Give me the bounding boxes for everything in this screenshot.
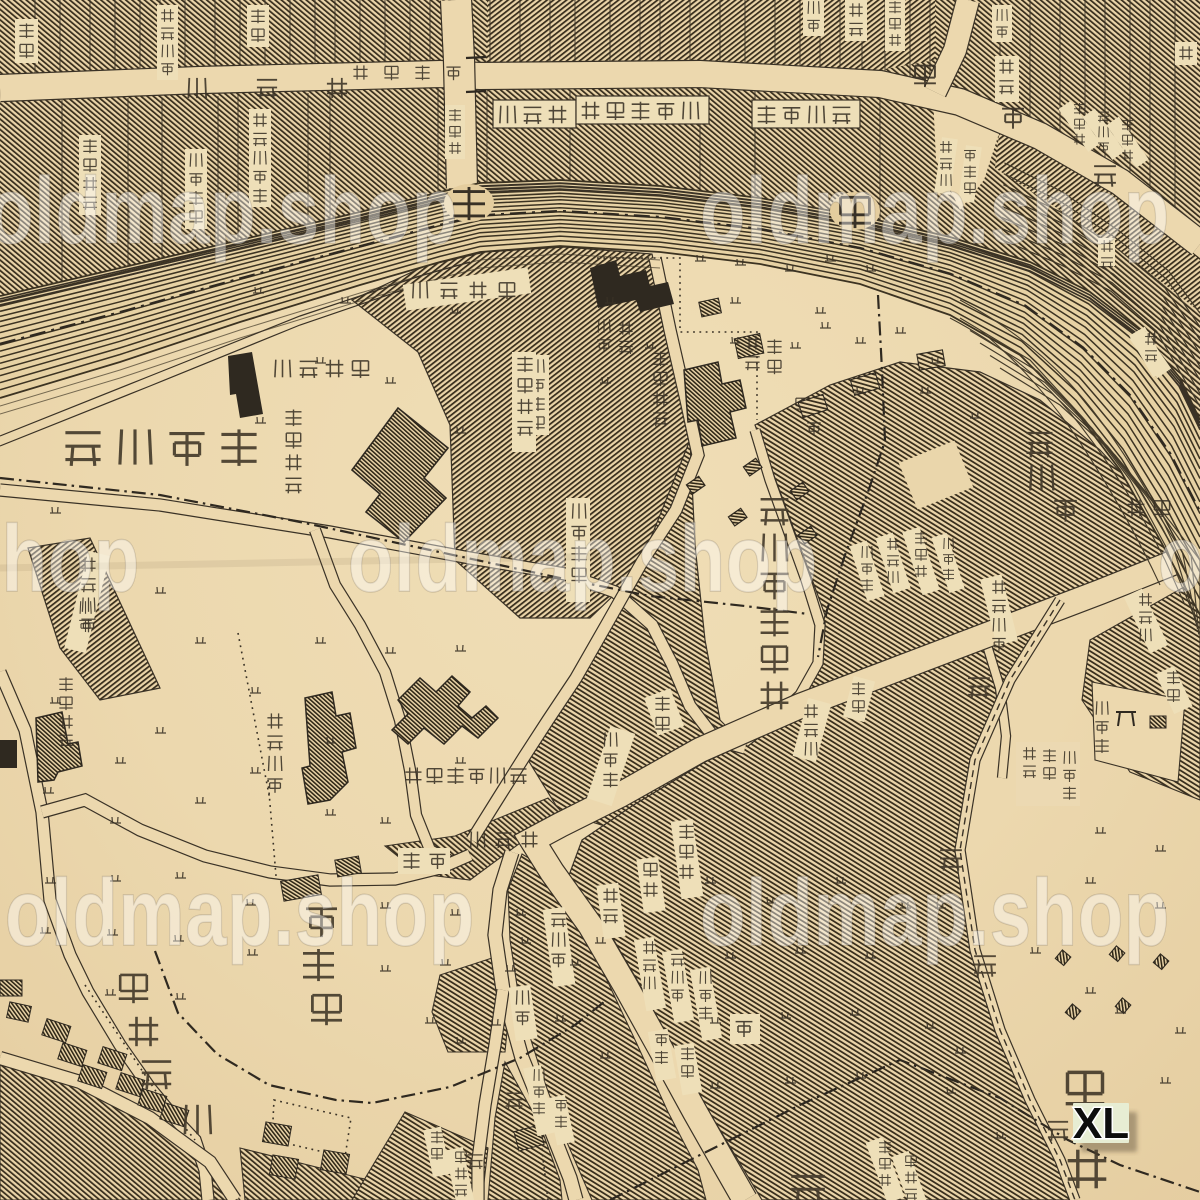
svg-text:oldmap.shop: oldmap.shop (1158, 506, 1200, 612)
svg-text:XL: XL (1073, 1099, 1129, 1148)
svg-text:oldmap.shop: oldmap.shop (5, 860, 475, 966)
svg-text:oldmap.shop: oldmap.shop (348, 506, 818, 612)
svg-text:oldmap.shop: oldmap.shop (0, 158, 458, 264)
svg-text:oldmap.shop: oldmap.shop (700, 158, 1170, 264)
svg-text:oldmap.shop: oldmap.shop (0, 506, 140, 612)
svg-text:oldmap.shop: oldmap.shop (700, 860, 1170, 966)
